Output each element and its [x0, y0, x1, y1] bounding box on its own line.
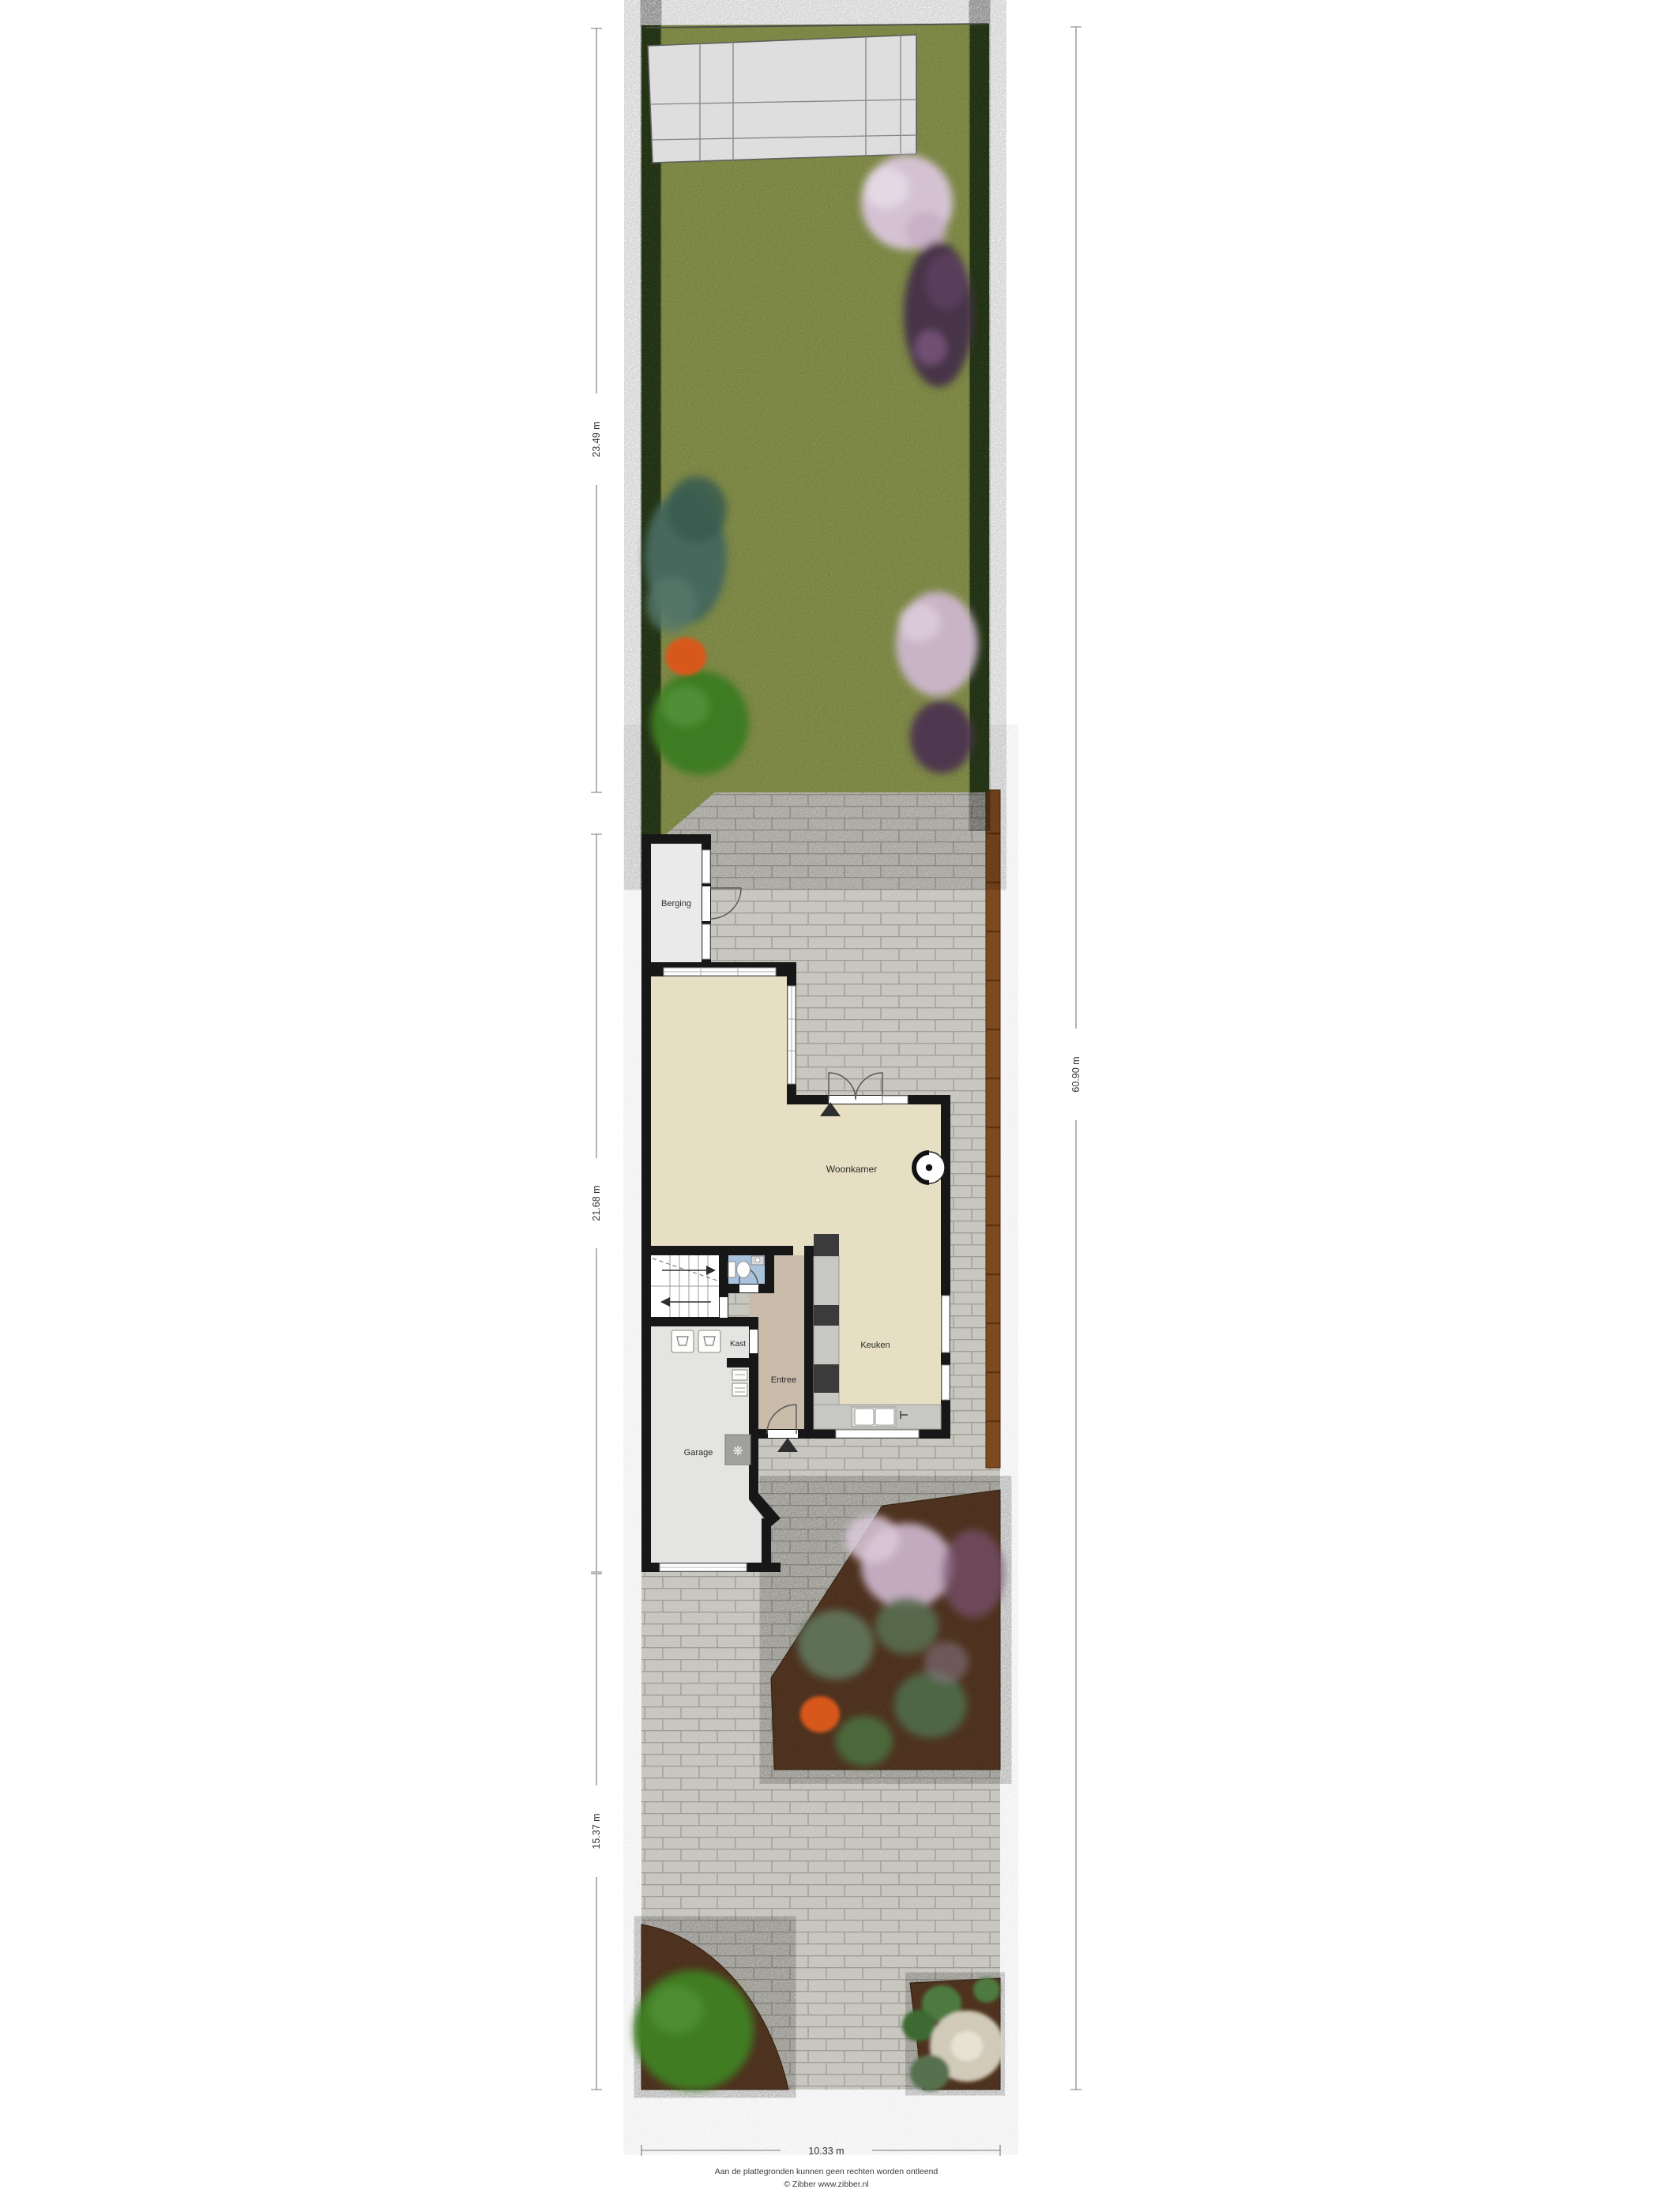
berging-window-bottom — [702, 924, 710, 959]
kitchen-window-east-1 — [942, 1296, 950, 1352]
orange-flowers-left — [665, 638, 706, 675]
toilet-sink — [751, 1256, 764, 1265]
green-bush-left — [651, 671, 749, 775]
kitchen-stove — [814, 1364, 839, 1393]
berging-door-gap — [702, 886, 710, 921]
hedge-right-texture — [970, 24, 989, 792]
kitchen-oven — [814, 1305, 839, 1326]
room-label-kast: Kast — [730, 1340, 746, 1349]
green-bush-bottom-left — [634, 1970, 754, 2090]
svg-text:60.90 m: 60.90 m — [1070, 1056, 1082, 1092]
washing-machine-1 — [671, 1330, 694, 1352]
kast-door-gap — [750, 1330, 758, 1353]
living-window-east-top — [882, 1096, 908, 1104]
room-label-woonkamer: Woonkamer — [826, 1164, 877, 1175]
room-label-keuken: Keuken — [860, 1341, 890, 1350]
doormat-icon: ❋ — [732, 1445, 743, 1458]
svg-text:15.37 m: 15.37 m — [591, 1813, 602, 1849]
fence-right — [986, 790, 1000, 1468]
terrace-tiles — [648, 35, 916, 163]
footer-credit: © Zibber www.zibber.nl — [784, 2180, 869, 2189]
berging-window-top — [702, 850, 710, 883]
room-label-garage: Garage — [684, 1448, 713, 1458]
hall-stairs-gap — [720, 1297, 728, 1318]
kitchen-window-south — [836, 1430, 919, 1438]
kitchen-tall-unit — [814, 1234, 839, 1256]
stairs-floor — [651, 1255, 719, 1319]
flower-bed-bottom-right — [902, 1977, 1004, 2091]
footer-disclaimer: Aan de plattegronden kunnen geen rechten… — [715, 2167, 939, 2176]
toilet-door-gap — [739, 1285, 758, 1292]
svg-text:10.33 m: 10.33 m — [808, 2146, 844, 2157]
blossom-tree-mid-right — [896, 592, 978, 696]
room-label-berging: Berging — [661, 899, 691, 908]
washing-machine-2 — [698, 1330, 720, 1352]
toilet-wc — [728, 1262, 750, 1278]
purple-shrub-right — [904, 242, 973, 387]
front-door-gap — [768, 1430, 798, 1438]
doormat: ❋ — [725, 1435, 750, 1465]
fireplace-stove — [913, 1152, 945, 1183]
orange-flowers-bed — [800, 1696, 840, 1732]
garden — [641, 24, 989, 848]
blossom-tree-top-right — [861, 155, 953, 250]
garden-terrace — [648, 32, 916, 166]
svg-text:21.68 m: 21.68 m — [591, 1185, 602, 1221]
meter-cupboard-units — [732, 1370, 747, 1396]
site-plan-canvas: ❋ Berging Woonkamer Keuken Entree Kast G… — [0, 0, 1659, 2212]
svg-text:23.49 m: 23.49 m — [591, 421, 602, 457]
room-label-entree: Entree — [771, 1375, 796, 1385]
purple-shrub-mid-right — [910, 701, 973, 773]
kitchen-window-east-2 — [942, 1365, 950, 1400]
